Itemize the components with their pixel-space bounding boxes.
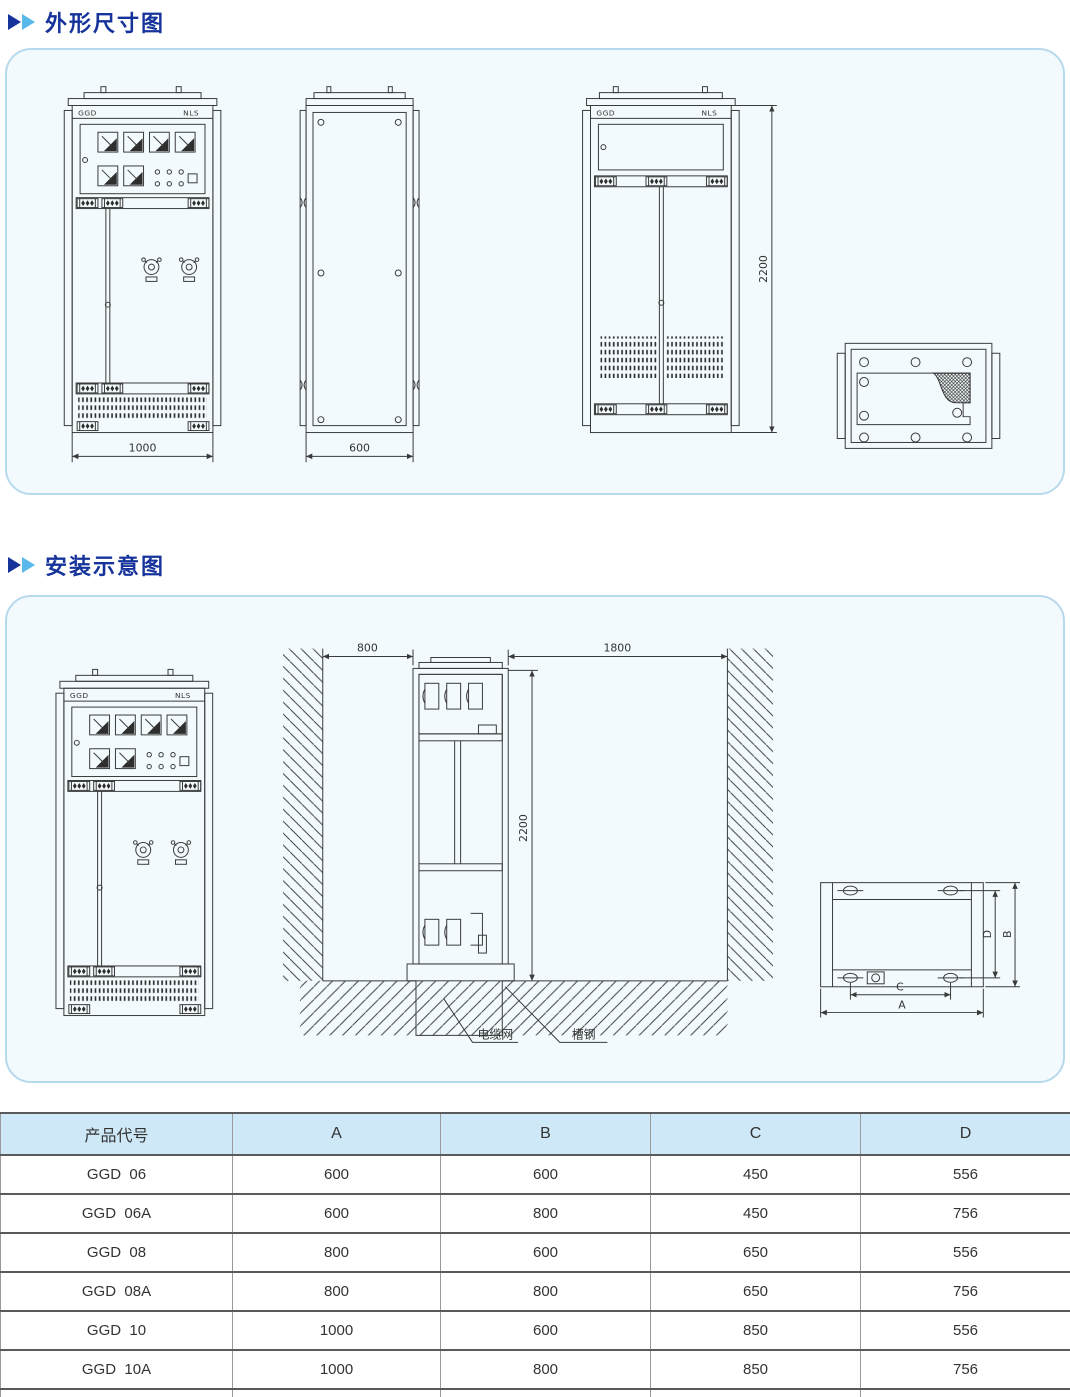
arrow-icon [22,557,35,573]
dim-cell: 650 [651,1233,861,1272]
outline-dimensions-drawing: 1000 600 [7,50,1063,493]
col-header-b: B [441,1113,651,1155]
dim-cell: 600 [441,1311,651,1350]
dim-cell: 756 [861,1389,1070,1397]
table-row: GGD 10 1000 600 850 556 [1,1311,1070,1350]
dim-cell: 800 [441,1389,651,1397]
dim-cell: 1000 [233,1350,441,1389]
rear-height-dim: 2200 [757,255,770,283]
dim-cell: 1200 [233,1389,441,1397]
installation-drawing: 2200 800 1800 电缆网 槽钢 [7,597,1063,1081]
section-header-outline: 外形尺寸图 [8,6,165,38]
dim-cell: 756 [861,1194,1070,1233]
dim-cell: 600 [441,1233,651,1272]
brand-label-left: GGD [596,108,615,117]
product-code-cell: GGD 08A [1,1272,233,1311]
product-code-cell: GGD 06 [1,1155,233,1194]
dim-cell: 850 [651,1311,861,1350]
installation-panel: 2200 800 1800 电缆网 槽钢 [5,595,1065,1083]
side-depth-dim: 600 [349,441,370,454]
table-row: GGD 08 800 600 650 556 [1,1233,1070,1272]
dim-cell: 1050 [651,1389,861,1397]
front-width-dim: 1000 [129,441,157,454]
right-gap-dim: 1800 [603,642,631,655]
dim-cell: 450 [651,1194,861,1233]
col-header-d: D [861,1113,1070,1155]
col-header-product-code: 产品代号 [1,1113,233,1155]
dim-cell: 556 [861,1311,1070,1350]
install-height-dim: 2200 [517,814,530,842]
dim-cell: 800 [441,1272,651,1311]
dim-cell: 800 [441,1350,651,1389]
cabinet-cross-section: 2200 [407,658,538,1036]
table-row: GGD 08A 800 800 650 756 [1,1272,1070,1311]
dim-cell: 556 [861,1155,1070,1194]
dim-a-label: A [898,999,906,1012]
product-code-cell: GGD 10A [1,1350,233,1389]
col-header-c: C [651,1113,861,1155]
table-row: GGD 12 1200 800 1050 756 [1,1389,1070,1397]
product-code-cell: GGD 08 [1,1233,233,1272]
catalog-page: GGD NLS [0,0,1070,1397]
dim-cell: 756 [861,1272,1070,1311]
dim-d-label: D [981,930,994,938]
dim-cell: 800 [441,1194,651,1233]
arrow-icon [8,557,21,573]
dim-cell: 1000 [233,1311,441,1350]
top-view-drawing [837,343,1000,448]
arrow-icon [22,14,35,30]
dim-c-label: C [896,981,904,994]
dim-cell: 850 [651,1350,861,1389]
dim-cell: 756 [861,1350,1070,1389]
table-row: GGD 06A 600 800 450 756 [1,1194,1070,1233]
side-view-drawing: 600 [300,87,419,463]
product-code-cell: GGD 12 [1,1389,233,1397]
dim-b-label: B [1001,930,1014,937]
dim-cell: 650 [651,1272,861,1311]
section-title: 安装示意图 [45,549,165,581]
clearance-dimensions: 800 1800 [323,642,728,666]
left-gap-dim: 800 [357,642,378,655]
channel-steel-label: 槽钢 [572,1027,596,1041]
mounting-plan-drawing: C A D B [821,883,1020,1018]
table-row: GGD 06 600 600 450 556 [1,1155,1070,1194]
col-header-a: A [233,1113,441,1155]
dim-cell: 450 [651,1155,861,1194]
product-code-cell: GGD 10 [1,1311,233,1350]
front-view-drawing [56,669,213,1015]
section-title: 外形尺寸图 [45,6,165,38]
cable-net-label: 电缆网 [477,1027,513,1041]
dim-cell: 600 [441,1155,651,1194]
spec-table: 产品代号 A B C D GGD 06 600 600 450 556 GGD … [0,1112,1070,1397]
rear-view-drawing: GGD NLS 2200 [583,87,777,433]
dim-cell: 600 [233,1194,441,1233]
dim-cell: 800 [233,1233,441,1272]
dim-cell: 600 [233,1155,441,1194]
outline-dimensions-panel: 1000 600 [5,48,1065,495]
arrow-icon [8,14,21,30]
table-row: GGD 10A 1000 800 850 756 [1,1350,1070,1389]
dim-cell: 800 [233,1272,441,1311]
front-view-drawing: 1000 [64,87,221,463]
brand-label-right: NLS [701,108,717,117]
dim-cell: 556 [861,1233,1070,1272]
product-code-cell: GGD 06A [1,1194,233,1233]
table-header-row: 产品代号 A B C D [1,1113,1070,1155]
section-header-install: 安装示意图 [8,549,165,581]
